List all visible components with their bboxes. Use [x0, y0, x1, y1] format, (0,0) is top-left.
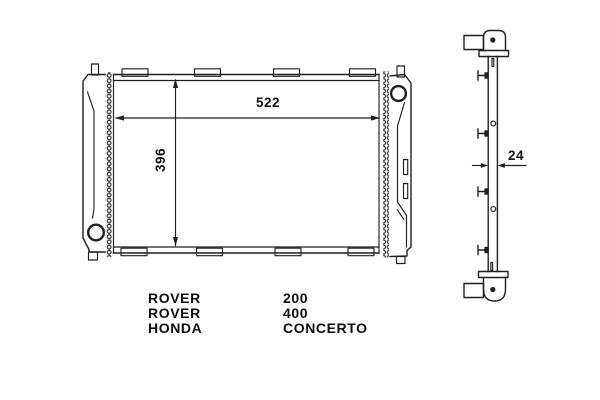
- application-row: ROVER 200: [148, 291, 368, 306]
- side-profile-bar: [488, 57, 497, 272]
- core-width-dimension: 522: [115, 95, 380, 121]
- left-tank-seam: [106, 72, 112, 257]
- left-tank: [83, 64, 105, 260]
- filler-port-circle: [391, 86, 406, 101]
- side-mounting-pins: [478, 71, 488, 255]
- side-view: 24: [464, 31, 526, 302]
- model-cell: 400: [283, 306, 308, 321]
- bottom-flange: [479, 272, 509, 278]
- depth-dimension-label: 24: [508, 148, 524, 163]
- outlet-port-circle: [88, 225, 104, 241]
- model-cell: CONCERTO: [283, 321, 368, 336]
- left-tank-bottom-tab: [89, 252, 98, 260]
- top-flange: [479, 51, 509, 57]
- depth-dimension: 24: [473, 148, 527, 168]
- front-view: 522 396: [83, 64, 411, 264]
- radiator-diagram: 522 396: [0, 0, 600, 400]
- make-cell: HONDA: [148, 321, 283, 336]
- bottom-hose-pipe: [464, 284, 484, 298]
- make-cell: ROVER: [148, 306, 283, 321]
- core-height-dimension: 396: [153, 79, 178, 246]
- model-cell: 200: [283, 291, 308, 306]
- right-tank: [390, 66, 411, 264]
- core-height-dimension-label: 396: [153, 148, 168, 172]
- catalog-diagram-page: 522 396: [0, 0, 600, 400]
- make-cell: ROVER: [148, 291, 283, 306]
- side-top-fitting: [464, 31, 509, 57]
- right-tank-bottom-tab: [397, 257, 406, 264]
- applications-table: ROVER 200 ROVER 400 HONDA CONCERTO: [148, 291, 368, 337]
- bottom-mounting-clips: [121, 248, 374, 256]
- top-hose-pipe: [464, 36, 484, 50]
- side-bottom-fitting: [464, 272, 508, 302]
- right-tank-seam: [383, 72, 389, 258]
- left-tank-top-tab: [92, 64, 99, 75]
- application-row: ROVER 400: [148, 306, 368, 321]
- application-row: HONDA CONCERTO: [148, 321, 368, 336]
- core-width-dimension-label: 522: [256, 95, 280, 110]
